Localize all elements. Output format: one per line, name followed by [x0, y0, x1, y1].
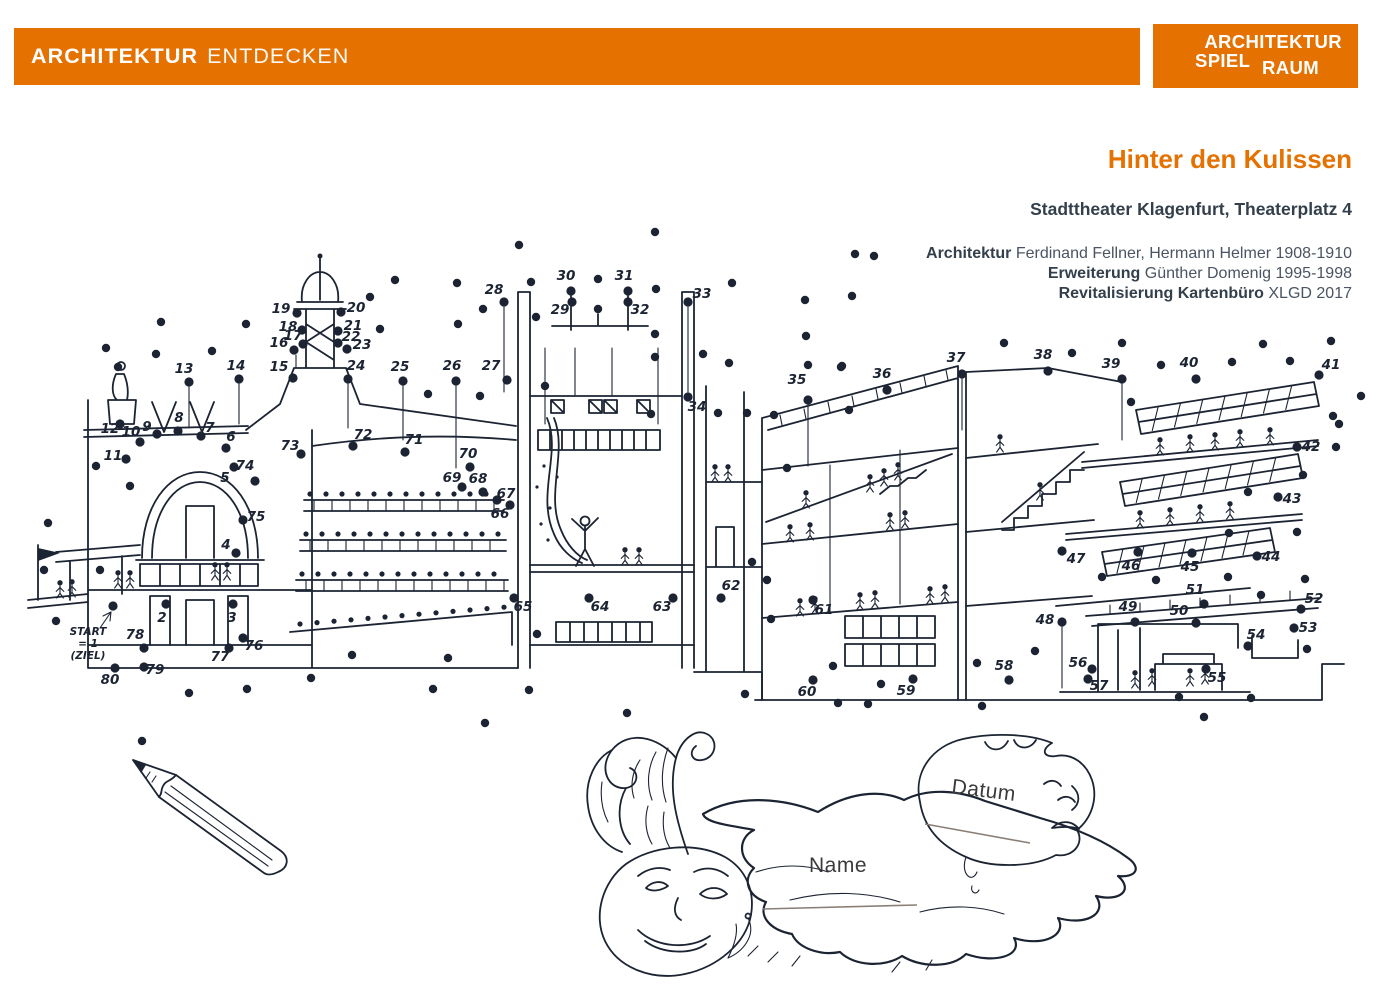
scatter-dot	[454, 320, 462, 328]
scatter-dot	[623, 709, 631, 717]
person-figure	[211, 568, 219, 580]
audience-head	[363, 571, 368, 576]
dot-number-66: 66	[491, 506, 510, 522]
audience-head	[323, 491, 328, 496]
puzzle-dot-4	[231, 548, 240, 557]
person-figure	[1187, 434, 1192, 439]
connect-the-dots-illustration: Name Datum START= 1(ZIEL) 23456789101112…	[0, 0, 1398, 1000]
audience-head	[399, 613, 404, 618]
dot-number-41: 41	[1321, 357, 1341, 373]
puzzle-dot-7	[196, 431, 205, 440]
scatter-dot	[1259, 340, 1267, 348]
person-figure	[1197, 504, 1202, 509]
audience-head	[467, 491, 472, 496]
person-figure	[126, 576, 134, 588]
scatter-dot	[877, 680, 885, 688]
puzzle-dot-62	[716, 593, 725, 602]
audience-head	[355, 491, 360, 496]
puzzle-dot-14	[234, 374, 243, 383]
audience-head	[315, 571, 320, 576]
dot-number-labels: 2345678910111213141516171819202122232425…	[101, 268, 1341, 700]
scatter-dot	[1200, 713, 1208, 721]
audience-head	[427, 571, 432, 576]
person-figure	[1136, 516, 1144, 528]
scatter-dot	[834, 699, 842, 707]
dot-number-25: 25	[391, 359, 410, 375]
dot-number-33: 33	[693, 286, 712, 302]
audience-head	[435, 491, 440, 496]
dot-number-73: 73	[281, 438, 300, 454]
audience-head	[348, 617, 353, 622]
person-figure	[57, 580, 62, 585]
puzzle-dot-48	[1057, 617, 1066, 626]
dot-number-2: 2	[157, 610, 166, 626]
audience-head	[335, 531, 340, 536]
dot-number-27: 27	[482, 358, 501, 374]
scatter-dot	[699, 350, 707, 358]
scatter-dot	[838, 362, 846, 370]
scatter-dot	[848, 292, 856, 300]
dot-number-44: 44	[1261, 549, 1281, 565]
audience-head	[383, 531, 388, 536]
glass-bands	[1102, 382, 1319, 576]
audience-head	[319, 531, 324, 536]
scatter-dot	[157, 318, 165, 326]
person-figure	[1227, 501, 1232, 506]
scatter-dot	[92, 462, 100, 470]
dot-number-49: 49	[1118, 599, 1138, 615]
scatter-dot	[741, 690, 749, 698]
name-field-label: Name	[809, 854, 867, 877]
scatter-dot	[652, 285, 660, 293]
audience-head	[347, 571, 352, 576]
scatter-dot	[481, 719, 489, 727]
dot-number-48: 48	[1035, 612, 1055, 628]
person-figure	[621, 553, 629, 565]
dot-number-23: 23	[353, 337, 372, 353]
dot-number-52: 52	[1305, 591, 1324, 607]
scatter-dot	[829, 662, 837, 670]
scatter-dot	[242, 320, 250, 328]
scatter-dot	[978, 702, 986, 710]
scatter-dot	[1327, 337, 1335, 345]
audience-head	[297, 621, 302, 626]
puzzle-dot-71	[400, 447, 409, 456]
dot-number-7: 7	[205, 420, 215, 436]
tragedy-mask	[919, 735, 1095, 893]
puzzle-dot-35	[803, 395, 812, 404]
scatter-dot	[1299, 471, 1307, 479]
person-figure	[886, 518, 894, 530]
dot-number-79: 79	[146, 662, 165, 678]
puzzle-dot-42	[1292, 442, 1301, 451]
dot-number-43: 43	[1282, 491, 1302, 507]
person-figure	[127, 570, 132, 575]
scatter-dot	[348, 651, 356, 659]
puzzle-dot-56	[1087, 664, 1096, 673]
dot-number-5: 5	[220, 470, 229, 486]
person-figure	[224, 562, 229, 567]
puzzle-dot-3	[228, 599, 237, 608]
person-figure	[1237, 429, 1242, 434]
puzzle-dot-26	[451, 376, 460, 385]
dot-number-50: 50	[1170, 603, 1189, 619]
scatter-dot	[44, 519, 52, 527]
dot-number-34: 34	[688, 399, 707, 415]
person-figure	[69, 579, 74, 584]
dot-number-26: 26	[443, 358, 462, 374]
person-figure	[1157, 437, 1162, 442]
audience-head	[382, 614, 387, 619]
glass-band	[1136, 382, 1319, 434]
scatter-dot	[1127, 398, 1135, 406]
person-figure	[1149, 668, 1154, 673]
scatter-dot	[763, 576, 771, 584]
scatter-dot	[1175, 693, 1183, 701]
scatter-dot	[1157, 361, 1165, 369]
person-figure	[872, 590, 877, 595]
puzzle-dot-46	[1133, 547, 1142, 556]
puzzle-dot-51	[1199, 599, 1208, 608]
puzzle-dot-68	[478, 487, 487, 496]
dot-number-8: 8	[174, 410, 183, 426]
scatter-dot	[479, 305, 487, 313]
dot-number-57: 57	[1090, 678, 1109, 694]
dot-number-77: 77	[211, 649, 230, 665]
dot-number-42: 42	[1301, 439, 1321, 455]
audience-head	[495, 531, 500, 536]
dot-number-56: 56	[1069, 655, 1088, 671]
person-figure	[797, 598, 802, 603]
person-figure	[1187, 668, 1192, 673]
person-figure	[895, 462, 900, 467]
person-figure	[1267, 427, 1272, 432]
person-figure	[1212, 432, 1217, 437]
puzzle-dot-50	[1191, 618, 1200, 627]
person-figure	[887, 512, 892, 517]
scatter-dot	[870, 252, 878, 260]
person-figure	[1266, 433, 1274, 445]
scatter-dot	[804, 361, 812, 369]
scatter-dot	[1228, 358, 1236, 366]
scatter-dot	[138, 737, 146, 745]
scatter-dot	[725, 359, 733, 367]
puzzle-dot-19	[292, 308, 301, 317]
audience-head	[451, 491, 456, 496]
dot-number-32: 32	[631, 302, 650, 318]
dot-number-74: 74	[236, 458, 255, 474]
scatter-dot	[743, 409, 751, 417]
audience-head	[387, 491, 392, 496]
puzzle-dot-9	[152, 429, 161, 438]
dot-number-24: 24	[347, 358, 366, 374]
audience-head	[447, 531, 452, 536]
puzzle-dot-47	[1057, 546, 1066, 555]
audience-head	[367, 531, 372, 536]
audience-head	[463, 531, 468, 536]
dot-number-39: 39	[1102, 356, 1121, 372]
scatter-dot	[1224, 573, 1232, 581]
dot-number-69: 69	[443, 470, 462, 486]
dot-number-47: 47	[1066, 551, 1086, 567]
scatter-dot	[801, 296, 809, 304]
dot-number-70: 70	[459, 446, 478, 462]
puzzle-dot-58	[1004, 675, 1013, 684]
person-figure	[724, 470, 732, 482]
dot-number-80: 80	[101, 672, 120, 688]
dot-number-45: 45	[1180, 559, 1200, 575]
dot-number-62: 62	[722, 578, 741, 594]
start-label-line: START	[70, 626, 108, 638]
dot-number-72: 72	[354, 427, 373, 443]
puzzle-dot-11	[121, 454, 130, 463]
person-figure	[115, 570, 120, 575]
dot-number-3: 3	[227, 610, 236, 626]
dot-number-75: 75	[247, 509, 266, 525]
person-figure	[802, 496, 810, 508]
puzzle-dot-23	[342, 344, 351, 353]
scatter-dot	[1000, 339, 1008, 347]
puzzle-dot-15	[288, 373, 297, 382]
audience-head	[475, 571, 480, 576]
cloth	[703, 792, 1136, 972]
dot-number-61: 61	[815, 602, 834, 618]
person-figure	[1186, 440, 1194, 452]
person-figure	[1132, 670, 1137, 675]
puzzle-dot-28	[499, 297, 508, 306]
scatter-dot	[647, 410, 655, 418]
dot-number-76: 76	[245, 638, 264, 654]
audience-head	[501, 605, 506, 610]
puzzle-dot-37	[957, 369, 966, 378]
scatter-dot	[1244, 488, 1252, 496]
person-figure	[712, 464, 717, 469]
dot-number-35: 35	[788, 372, 807, 388]
audience-head	[331, 619, 336, 624]
dot-number-55: 55	[1208, 670, 1227, 686]
audience-head	[403, 491, 408, 496]
scatter-dot	[864, 700, 872, 708]
audience-head	[314, 620, 319, 625]
dot-number-64: 64	[591, 599, 610, 615]
audience-head	[467, 607, 472, 612]
scatter-dot	[594, 275, 602, 283]
scatter-dot	[424, 390, 432, 398]
person-figure	[711, 470, 719, 482]
person-figure	[635, 553, 643, 565]
scatter-dot	[307, 674, 315, 682]
dot-number-18: 18	[279, 319, 298, 335]
start-label-line: = 1	[78, 638, 98, 650]
person-figure	[725, 464, 730, 469]
puzzle-dot-20	[336, 307, 345, 316]
scatter-dot	[594, 305, 602, 313]
scatter-dot	[748, 558, 756, 566]
person-figure	[856, 598, 864, 610]
person-figure	[223, 568, 231, 580]
scatter-dot	[1152, 576, 1160, 584]
puzzle-dot-45	[1187, 548, 1196, 557]
puzzle-dot-36	[882, 385, 891, 394]
puzzle-dot-53	[1289, 623, 1298, 632]
scatter-dot	[1098, 573, 1106, 581]
person-figure	[1167, 507, 1172, 512]
puzzle-dot-25	[398, 376, 407, 385]
scatter-dot	[1335, 420, 1343, 428]
scatter-dot	[1301, 575, 1309, 583]
dot-number-67: 67	[497, 486, 516, 502]
audience-head	[399, 531, 404, 536]
person-figure	[806, 528, 814, 540]
scatter-dot	[802, 332, 810, 340]
scatter-dot	[532, 313, 540, 321]
scatter-dot	[1329, 412, 1337, 420]
pencil-illustration	[133, 760, 287, 874]
balcony-front	[300, 540, 506, 551]
person-figure	[1236, 435, 1244, 447]
audience-head	[459, 571, 464, 576]
person-figure	[803, 490, 808, 495]
scatter-dot	[1257, 591, 1265, 599]
scatter-dot	[1332, 443, 1340, 451]
dot-number-71: 71	[405, 432, 424, 448]
worksheet-page: ARCHITEKTUR ENTDECKEN ARCHITEKTUR SPIEL …	[0, 0, 1398, 1000]
scatter-dot	[525, 686, 533, 694]
puzzle-dot-31	[623, 286, 632, 295]
scatter-dot	[783, 464, 791, 472]
person-figure	[807, 522, 812, 527]
scatter-dot	[96, 566, 104, 574]
dot-number-38: 38	[1034, 347, 1053, 363]
scatter-dot	[444, 654, 452, 662]
dot-number-37: 37	[947, 350, 966, 366]
scatter-dot	[1303, 645, 1311, 653]
person-figure	[871, 596, 879, 608]
puzzle-dot-39	[1117, 374, 1126, 383]
puzzle-dot-24	[343, 374, 352, 383]
dot-number-20: 20	[347, 300, 366, 316]
dot-number-65: 65	[514, 599, 533, 615]
person-figure	[867, 474, 872, 479]
scatter-dot	[527, 278, 535, 286]
dot-number-36: 36	[873, 366, 892, 382]
dot-number-11: 11	[104, 448, 123, 464]
dot-number-68: 68	[469, 471, 488, 487]
person-figure	[941, 590, 949, 602]
audience-head	[411, 571, 416, 576]
audience-head	[431, 531, 436, 536]
dot-number-53: 53	[1299, 620, 1318, 636]
person-figure	[786, 530, 794, 542]
scatter-dot	[1286, 357, 1294, 365]
scatter-dot	[1225, 529, 1233, 537]
scatter-dot	[845, 406, 853, 414]
audience-head	[416, 612, 421, 617]
dot-number-10: 10	[122, 424, 141, 440]
scatter-dot	[391, 276, 399, 284]
person-figure	[881, 468, 886, 473]
person-figure	[1166, 513, 1174, 525]
puzzle-dot-33	[683, 297, 692, 306]
person-figure	[636, 547, 641, 552]
audience-head	[443, 571, 448, 576]
scatter-dot	[651, 353, 659, 361]
scatter-dot	[376, 325, 384, 333]
scatter-dot	[541, 382, 549, 390]
dot-number-46: 46	[1121, 558, 1141, 574]
audience-head	[379, 571, 384, 576]
person-figure	[1186, 674, 1194, 686]
puzzle-dot-74	[250, 476, 259, 485]
scatter-dot	[770, 411, 778, 419]
scatter-dot	[651, 228, 659, 236]
person-figure	[902, 510, 907, 515]
scatter-dot	[126, 482, 134, 490]
start-label-line: (ZIEL)	[71, 650, 106, 662]
audience-head	[351, 531, 356, 536]
scatter-dot	[515, 241, 523, 249]
person-figure	[1156, 443, 1164, 455]
person-figure	[942, 584, 947, 589]
scatter-dot	[728, 279, 736, 287]
scatter-dot	[1293, 528, 1301, 536]
audience-head	[395, 571, 400, 576]
dot-number-40: 40	[1179, 355, 1199, 371]
dot-number-63: 63	[653, 599, 672, 615]
scatter-dot	[476, 392, 484, 400]
scatter-dot	[152, 350, 160, 358]
audience-head	[307, 491, 312, 496]
puzzle-dot-38	[1043, 366, 1052, 375]
person-figure	[1196, 510, 1204, 522]
audience-head	[365, 616, 370, 621]
dot-number-51: 51	[1186, 582, 1205, 598]
person-figure	[857, 592, 862, 597]
start-annotation: START= 1(ZIEL)	[70, 612, 111, 662]
scatter-dot	[1247, 694, 1255, 702]
dot-number-60: 60	[798, 684, 817, 700]
puzzle-dot-13	[184, 377, 193, 386]
person-figure	[622, 547, 627, 552]
audience-head	[433, 610, 438, 615]
audience-head	[415, 531, 420, 536]
balcony-front	[296, 580, 508, 591]
dot-number-4: 4	[220, 537, 230, 553]
dot-number-78: 78	[126, 627, 145, 643]
puzzle-dot-30	[566, 286, 575, 295]
audience-head	[491, 571, 496, 576]
scatter-dot	[767, 615, 775, 623]
scatter-dot	[185, 689, 193, 697]
person-figure	[997, 434, 1002, 439]
puzzle-dot-43	[1273, 492, 1282, 501]
audience-head	[331, 571, 336, 576]
scatter-dot	[651, 330, 659, 338]
person-figure	[212, 562, 217, 567]
puzzle-dot-16	[289, 345, 298, 354]
person-figure	[114, 576, 122, 588]
scatter-dot	[208, 347, 216, 355]
puzzle-dot-27	[502, 375, 511, 384]
puzzle-dot-78	[139, 643, 148, 652]
person-figure	[927, 586, 932, 591]
dot-number-28: 28	[485, 282, 504, 298]
scatter-dot	[973, 659, 981, 667]
dot-number-59: 59	[897, 683, 916, 699]
audience-head	[303, 531, 308, 536]
dot-number-58: 58	[995, 658, 1014, 674]
scatter-dot	[714, 409, 722, 417]
